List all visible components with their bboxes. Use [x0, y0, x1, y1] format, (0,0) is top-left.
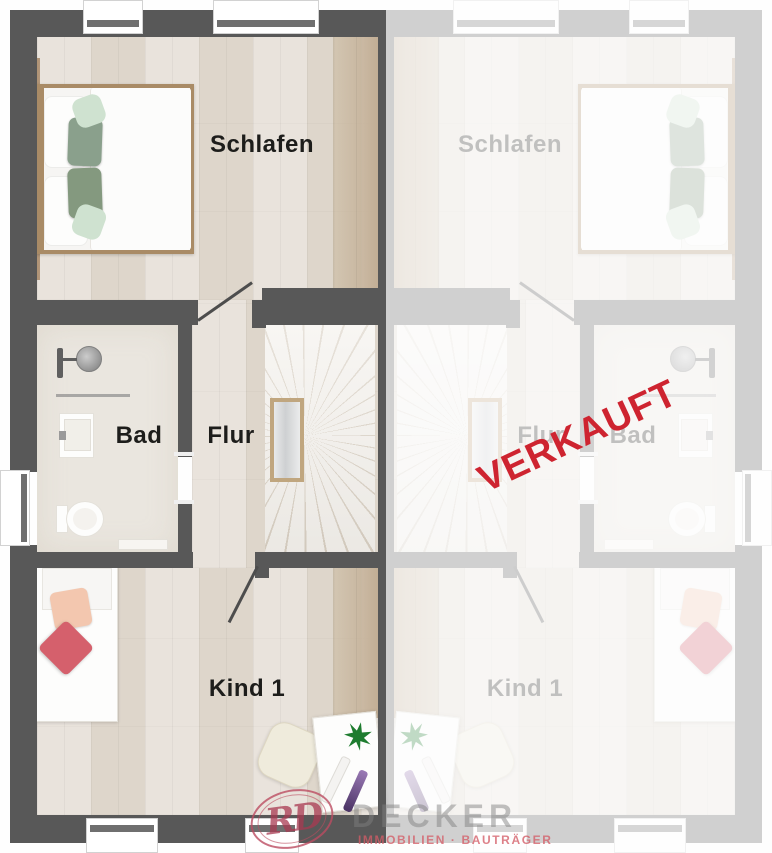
wall-bath-hall-upper: [178, 325, 192, 457]
window-frame: [457, 20, 555, 27]
window-bottom-1: [614, 818, 686, 853]
wall-top: [394, 10, 762, 37]
wall-hall-child: [394, 552, 517, 568]
toilet-seat: [675, 508, 699, 530]
shower-fixture-icon: [709, 348, 715, 378]
wall-party: [386, 10, 394, 843]
wall-party: [378, 10, 386, 843]
wall-top: [10, 10, 378, 37]
room-label-child: Kind 1: [209, 675, 285, 703]
wall-hall-child: [255, 552, 378, 568]
logo-tagline: IMMOBILIEN · BAUTRÄGER: [358, 833, 553, 847]
wall-stair-top: [262, 288, 378, 325]
bath-mat: [604, 539, 654, 550]
window-bottom-1: [86, 818, 158, 853]
sink-faucet-icon: [706, 431, 713, 440]
wall-stair-top: [394, 288, 510, 325]
bath-mat: [118, 539, 168, 550]
floorplan-canvas: Schlafen Bad Flur Kind 1: [0, 0, 772, 853]
window-bath: [0, 470, 30, 546]
unit-left: Schlafen Bad Flur Kind 1: [0, 0, 386, 853]
shower-arm-icon: [57, 358, 77, 361]
door-jamb: [578, 500, 598, 504]
window-frame: [87, 20, 139, 27]
door-jamb: [174, 500, 194, 504]
floor-accent-strip-bottom: [333, 568, 378, 718]
window-top-1: [83, 0, 143, 34]
floor-accent-strip-top: [333, 37, 378, 300]
shower-fixture-icon: [57, 348, 63, 378]
wall-bath-child: [579, 552, 762, 568]
wall-left-upper: [735, 10, 762, 472]
window-frame: [21, 474, 27, 542]
room-label-bath: Bad: [116, 422, 163, 450]
logo-monogram: RD: [263, 794, 323, 843]
window-frame: [745, 474, 751, 542]
room-label-hall: Flur: [207, 422, 254, 450]
room-label-child: Kind 1: [487, 675, 563, 703]
wall-bedroom-bath: [10, 300, 198, 325]
wall-bath-hall-lower: [580, 503, 594, 552]
shower-glass-divider: [56, 394, 130, 397]
sink-basin: [64, 419, 91, 451]
unit-structure: [0, 0, 386, 853]
wall-left-lower: [10, 545, 37, 815]
floor-accent-strip-top: [394, 37, 439, 300]
door-jamb: [174, 452, 194, 456]
window-frame: [217, 20, 315, 27]
shower-arm-icon: [695, 358, 715, 361]
sink-basin: [681, 419, 708, 451]
wall-bath-child: [10, 552, 193, 568]
toilet-seat: [73, 508, 97, 530]
sink-faucet-icon: [59, 431, 66, 440]
window-bath: [742, 470, 772, 546]
window-frame: [90, 825, 154, 832]
window-frame: [633, 20, 685, 27]
shower-drain-icon: [670, 346, 696, 372]
stair-railing: [270, 398, 304, 482]
window-top-2: [213, 0, 319, 34]
wall-bath-hall-lower: [178, 503, 192, 552]
wall-stub: [252, 300, 266, 328]
wall-bedroom-bath: [574, 300, 762, 325]
wall-left-lower: [735, 545, 762, 815]
window-top-1: [629, 0, 689, 34]
wall-stub: [255, 552, 269, 578]
logo-company-name: DECKER: [352, 798, 517, 835]
room-label-bedroom: Schlafen: [458, 131, 562, 159]
room-label-bedroom: Schlafen: [210, 131, 314, 159]
window-frame: [618, 825, 682, 832]
floor-accent-strip-bottom: [394, 568, 439, 718]
wall-stub: [506, 300, 520, 328]
shower-drain-icon: [76, 346, 102, 372]
wall-left-upper: [10, 10, 37, 472]
window-top-2: [453, 0, 559, 34]
